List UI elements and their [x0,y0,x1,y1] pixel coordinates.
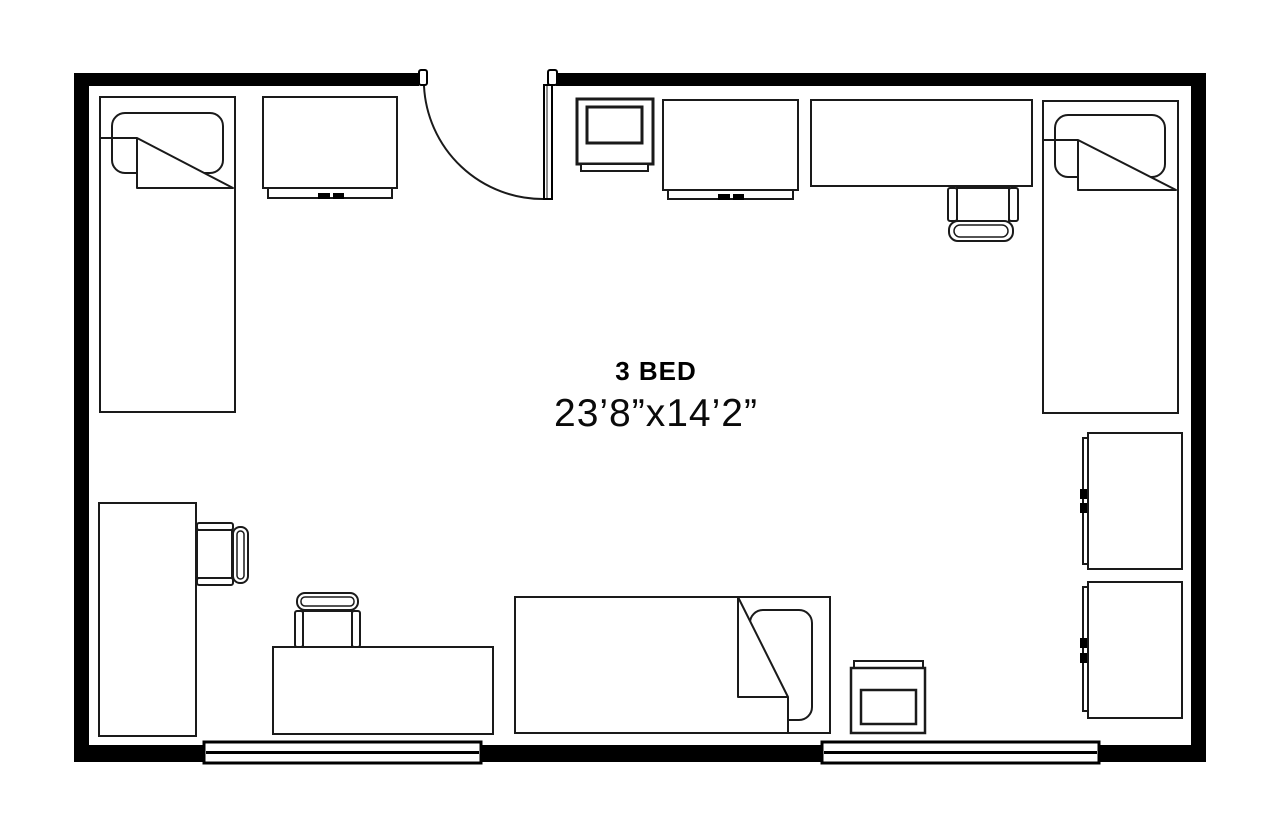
room-size-label: 23’8”x14’2” [554,392,758,435]
chair-armrest [948,188,957,221]
desk-icon [99,503,196,736]
chair-armrest [197,523,233,530]
bed-top-left [100,97,235,412]
wardrobe-handle [1080,489,1087,499]
wall-left [74,73,89,762]
tv-unit [577,99,653,171]
wall-bottom-left-segment [74,745,204,762]
chair-seat [303,611,352,647]
wardrobe-icon [1088,433,1182,569]
window-right [822,742,1099,763]
chair-bottom-left [197,523,248,585]
floorplan-canvas: 3 BED 23’8”x14’2” [0,0,1280,829]
chair-armrest [352,611,360,647]
door-jamb-left [419,70,427,85]
floorplan-drawing: 3 BED 23’8”x14’2” [0,0,1280,829]
door-jamb-right [548,70,557,85]
nightstand-inset [861,690,916,724]
dresser-handle [733,194,744,200]
dresser-handle [318,193,330,199]
wardrobe-lower [1080,582,1182,718]
wardrobe-handle [1080,638,1087,648]
desk-icon [811,100,1032,186]
tv-screen [587,107,642,143]
room-label: 3 BED [615,356,697,386]
dresser-base [668,190,793,199]
desk-bottom-middle [273,647,493,734]
wall-top-right-segment [556,73,1206,86]
chair-armrest [295,611,303,647]
dresser-top-right [663,100,798,200]
entry-door [419,70,557,199]
chair-back [949,221,1013,241]
chair-top-right [948,188,1018,241]
dresser-icon [663,100,798,190]
nightstand [851,661,925,733]
wardrobe-handle [1080,503,1087,513]
dresser-icon [263,97,397,188]
chair-back [233,527,248,583]
wardrobe-upper [1080,433,1182,569]
desk-icon [273,647,493,734]
door-leaf [544,85,552,199]
dresser-handle [333,193,344,199]
desk-top-right [811,100,1032,186]
dresser-handle [718,194,730,200]
wardrobe-icon [1088,582,1182,718]
bed-top-right [1043,101,1178,413]
wall-top-left-segment [74,73,419,86]
bed-bottom [515,597,830,733]
wardrobe-handle [1080,653,1087,663]
chair-armrest [1009,188,1018,221]
door-swing-icon [424,86,544,199]
wall-right [1191,73,1206,762]
wall-bottom-middle-segment [481,745,822,762]
chair-seat [197,530,232,578]
sheet-area [739,698,787,731]
chair-bottom-middle [295,593,360,647]
tv-base [581,164,648,171]
chair-back [297,593,358,610]
wall-bottom-right-segment [1099,745,1206,762]
window-left [204,742,481,763]
desk-bottom-left [99,503,196,736]
chair-armrest [197,578,233,585]
dresser-top-left [263,97,397,199]
